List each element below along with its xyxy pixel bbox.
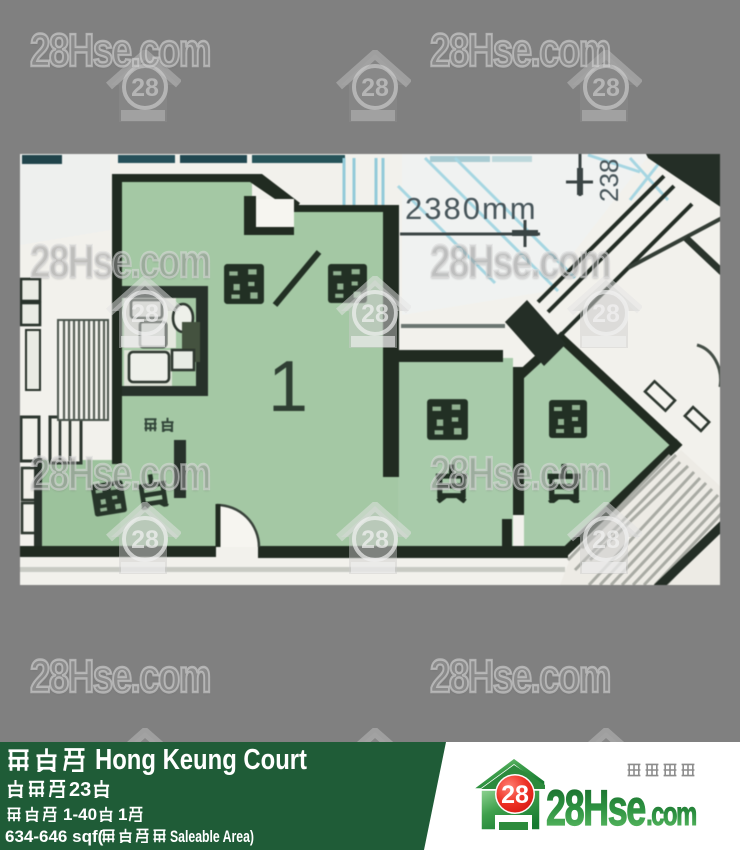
svg-text:Hong Keung Court: Hong Keung Court [95, 744, 307, 776]
svg-text:1-40: 1-40 [63, 805, 97, 824]
svg-text:23: 23 [69, 779, 91, 801]
svg-text:634-646 sqf(: 634-646 sqf( [5, 827, 104, 846]
svg-text:1: 1 [118, 805, 127, 824]
svg-text:28Hse: 28Hse [546, 781, 645, 836]
svg-text:28: 28 [501, 781, 529, 809]
svg-text:.com: .com [646, 796, 696, 833]
svg-text:Saleable Area): Saleable Area) [170, 827, 254, 846]
